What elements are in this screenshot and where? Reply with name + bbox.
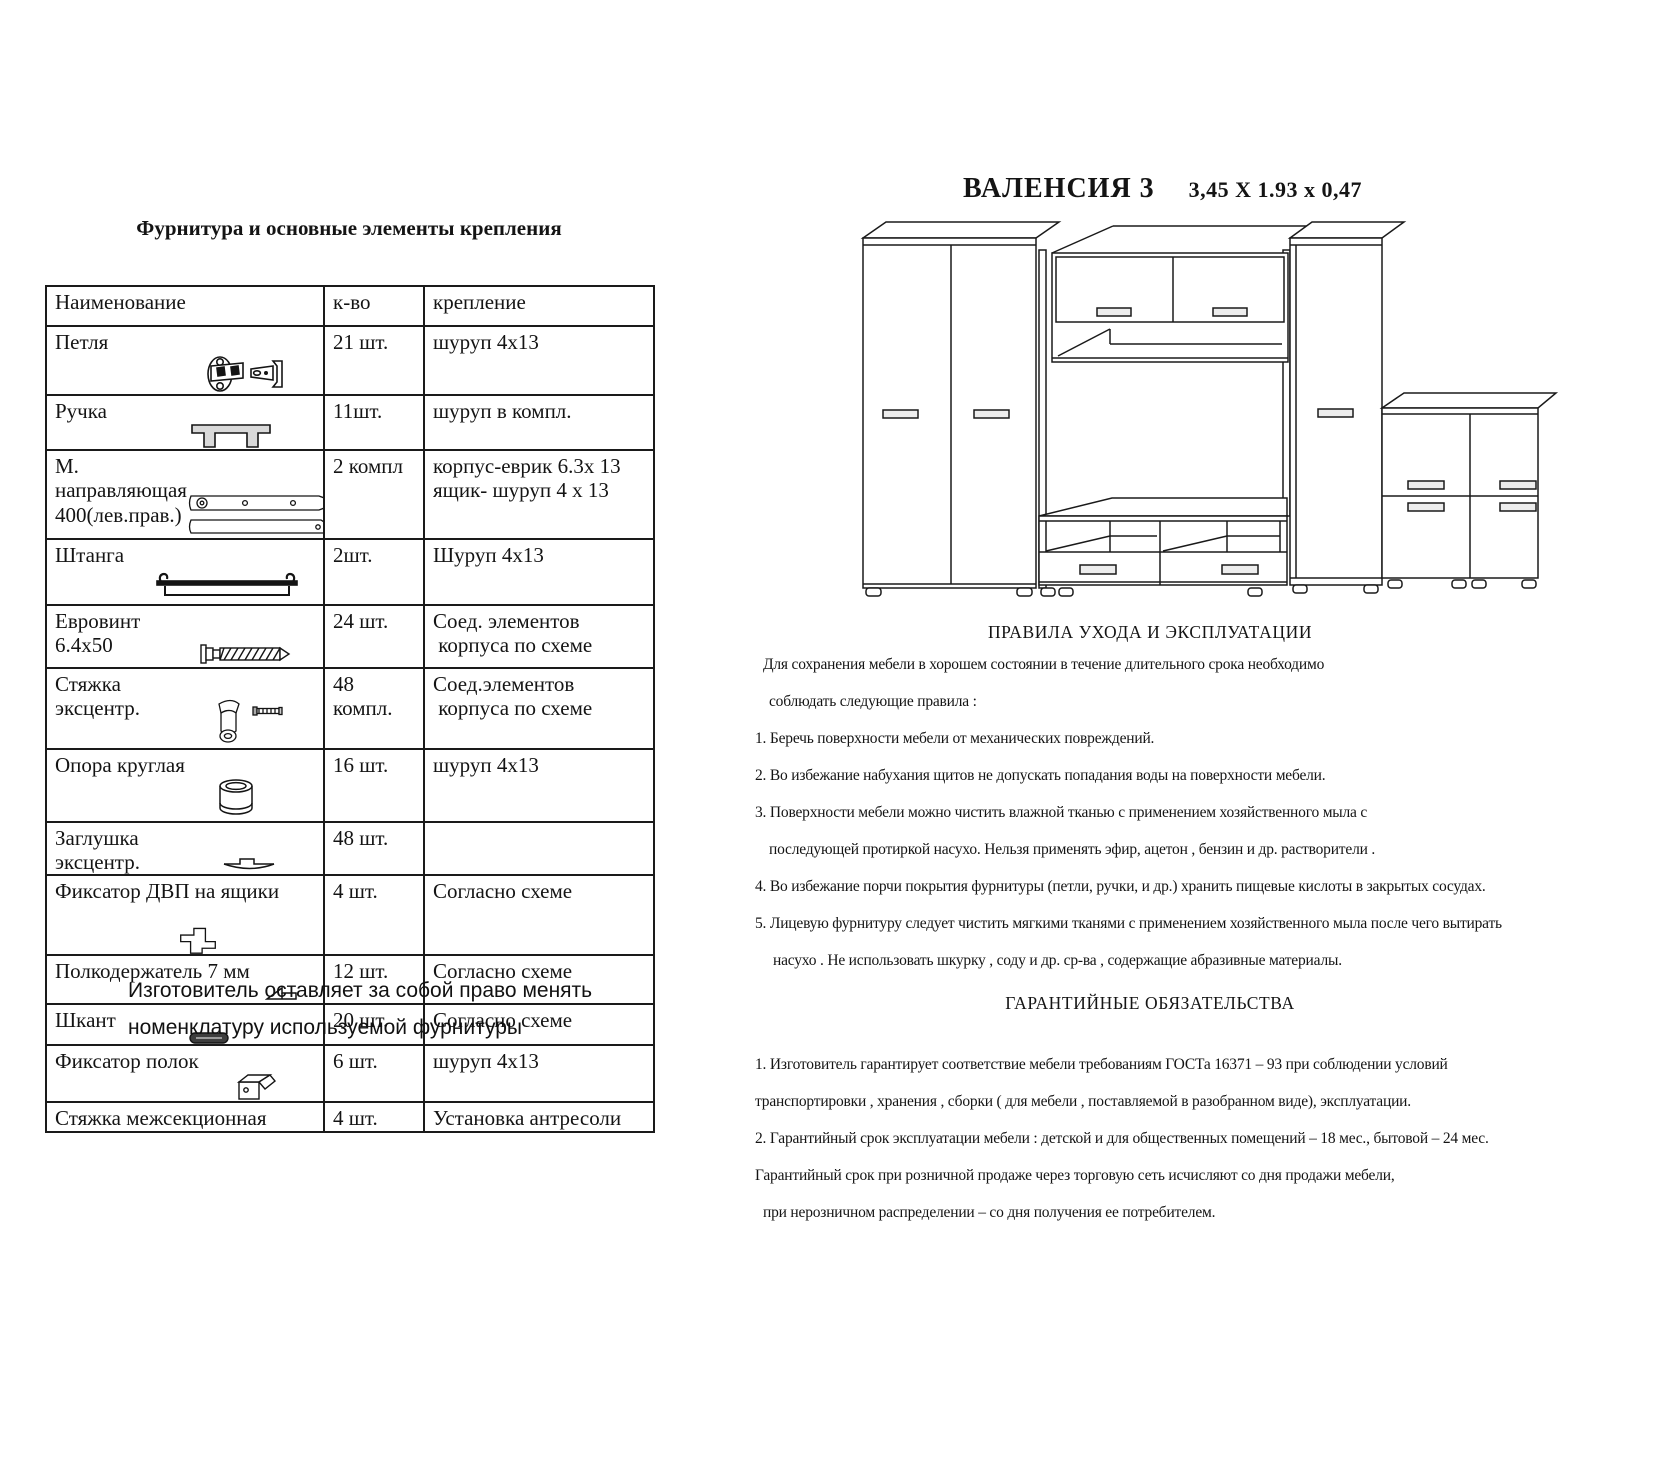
item-qty: 4 шт. <box>324 1102 424 1132</box>
item-qty: 48 шт. <box>324 822 424 875</box>
item-qty: 21 шт. <box>324 326 424 395</box>
item-fix: корпус-еврик 6.3х 13 ящик- шуруп 4 х 13 <box>424 450 654 539</box>
item-qty: 16 шт. <box>324 749 424 822</box>
warranty-line: при нерозничном распределении – со дня п… <box>755 1194 1489 1231</box>
table-header-row: Наименование к-во крепление <box>46 286 654 326</box>
item-fix <box>424 822 654 875</box>
item-fix: Соед. элементов корпуса по схеме <box>424 605 654 668</box>
table-row: М. направляющая 400(лев.прав.) 2 компл к… <box>46 450 654 539</box>
table-row: Ручка 11шт. шуруп в компл. <box>46 395 654 450</box>
care-line: 4. Во избежание порчи покрытия фурнитуры… <box>755 868 1502 905</box>
item-fix: шуруп в компл. <box>424 395 654 450</box>
header-name: Наименование <box>46 286 324 326</box>
handle-icon <box>190 399 272 449</box>
item-fix: Шуруп 4х13 <box>424 539 654 604</box>
table-row: Стяжка межсекционная 4 шт. Установка ант… <box>46 1102 654 1132</box>
table-row: Фиксатор полок 6 шт. шуруп 4х13 <box>46 1045 654 1102</box>
item-name: Заглушка эксцентр. <box>55 826 221 874</box>
warranty-line: 2. Гарантийный срок эксплуатации мебели … <box>755 1120 1489 1157</box>
round-support-icon <box>213 753 259 821</box>
item-qty: 2шт. <box>324 539 424 604</box>
header-qty: к-во <box>324 286 424 326</box>
item-name: Фиксатор ДВП на ящики <box>55 879 279 903</box>
hdf-clip-icon <box>175 901 317 953</box>
care-line: 5. Лицевую фурнитуру следует чистить мяг… <box>755 905 1502 942</box>
item-fix: Согласно схеме <box>424 875 654 954</box>
care-line: 1. Беречь поверхности мебели от механиче… <box>755 720 1502 757</box>
care-line: 3. Поверхности мебели можно чистить влаж… <box>755 794 1502 831</box>
table-row: Петля 21 шт. шуруп 4х13 <box>46 326 654 395</box>
warranty-line: транспортировки , хранения , сборки ( дл… <box>755 1083 1489 1120</box>
item-fix: Установка антресоли <box>424 1102 654 1132</box>
table-row: Фиксатор ДВП на ящики 4 шт. Согласно схе… <box>46 875 654 954</box>
manufacturer-note: Изготовитель оставляет за собой право ме… <box>128 972 592 1046</box>
table-row: Штанга 2шт. Шуруп 4х13 <box>46 539 654 604</box>
care-line: соблюдать следующие правила : <box>755 683 1502 720</box>
cam-cap-icon <box>221 828 277 872</box>
item-name: Шкант <box>55 1008 116 1032</box>
warranty-title: ГАРАНТИЙНЫЕ ОБЯЗАТЕЛЬСТВА <box>755 993 1545 1014</box>
item-name: Опора круглая <box>55 753 185 777</box>
item-name: Стяжка межсекционная <box>55 1106 267 1130</box>
table-row: Опора круглая 16 шт. шуруп 4х13 <box>46 749 654 822</box>
item-fix: Соед.элементов корпуса по схеме <box>424 668 654 749</box>
item-name: Фиксатор полок <box>55 1049 199 1073</box>
table-row: Евровинт 6.4х50 24 шт. Соед. элементов к… <box>46 605 654 668</box>
euro-screw-icon <box>199 617 291 667</box>
care-rules-text: Для сохранения мебели в хорошем состояни… <box>755 646 1502 979</box>
shelf-lock-icon <box>237 1049 277 1101</box>
care-line: насухо . Не использовать шкурку , соду и… <box>755 942 1502 979</box>
item-qty: 2 компл <box>324 450 424 539</box>
product-dimensions: 3,45 X 1.93 x 0,47 <box>1189 177 1362 203</box>
header-fix: крепление <box>424 286 654 326</box>
item-name: М. направляющая 400(лев.прав.) <box>55 454 187 526</box>
item-qty: 11шт. <box>324 395 424 450</box>
product-header: ВАЛЕНСИЯ 3 3,45 X 1.93 x 0,47 <box>963 173 1362 205</box>
item-qty: 48 компл. <box>324 668 424 749</box>
care-rules-title: ПРАВИЛА УХОДА И ЭКСПЛУАТАЦИИ <box>755 622 1545 643</box>
furniture-diagram <box>820 205 1560 605</box>
item-qty: 24 шт. <box>324 605 424 668</box>
product-name: ВАЛЕНСИЯ 3 <box>963 173 1155 205</box>
item-fix: шуруп 4х13 <box>424 749 654 822</box>
rod-icon <box>147 545 307 603</box>
item-fix: шуруп 4х13 <box>424 1045 654 1102</box>
hardware-section-title: Фурнитура и основные элементы крепления <box>45 216 653 241</box>
cam-lock-icon <box>209 674 309 748</box>
instruction-sheet: Фурнитура и основные элементы крепления … <box>0 0 1680 1470</box>
item-name: Евровинт 6.4х50 <box>55 609 199 657</box>
table-row: Стяжка эксцентр. 48 компл. Соед.элементо… <box>46 668 654 749</box>
care-line: Для сохранения мебели в хорошем состояни… <box>755 646 1502 683</box>
hinge-icon <box>203 330 289 394</box>
warranty-text: 1. Изготовитель гарантирует соответствие… <box>755 1046 1489 1231</box>
item-qty: 6 шт. <box>324 1045 424 1102</box>
item-name: Ручка <box>55 399 107 423</box>
warranty-line: Гарантийный срок при розничной продаже ч… <box>755 1157 1489 1194</box>
item-name: Петля <box>55 330 108 354</box>
item-name: Стяжка эксцентр. <box>55 672 209 720</box>
item-qty: 4 шт. <box>324 875 424 954</box>
care-line: последующей протиркой насухо. Нельзя при… <box>755 831 1502 868</box>
item-fix: шуруп 4х13 <box>424 326 654 395</box>
table-row: Заглушка эксцентр. 48 шт. <box>46 822 654 875</box>
drawer-slide-icon <box>187 468 324 538</box>
care-line: 2. Во избежание набухания щитов не допус… <box>755 757 1502 794</box>
item-name: Штанга <box>55 543 124 567</box>
warranty-line: 1. Изготовитель гарантирует соответствие… <box>755 1046 1489 1083</box>
